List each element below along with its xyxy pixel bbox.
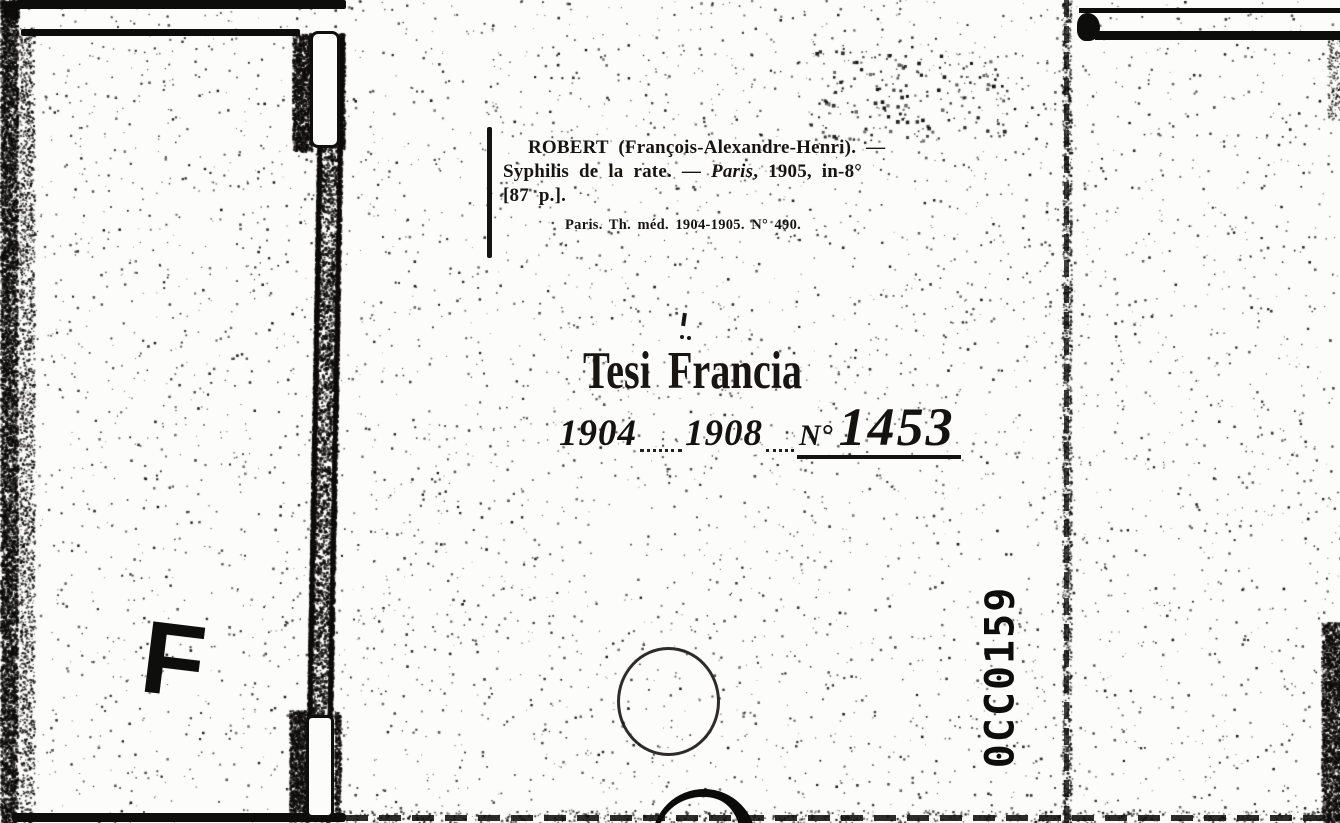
registry-number-label: N° bbox=[799, 419, 833, 453]
registry-year-to: 1908 bbox=[685, 412, 763, 455]
catalog-entry-author: ROBERT bbox=[528, 137, 608, 158]
left-page-top-border bbox=[16, 0, 346, 9]
right-page-top-border-thin bbox=[1079, 8, 1340, 13]
catalog-entry-title-place: Paris bbox=[711, 161, 753, 182]
catalog-entry: ROBERT (François-Alexandre-Henri). — Syp… bbox=[503, 136, 953, 237]
catalog-entry-source: Paris. Th. méd. 1904-1905. N° 490. bbox=[565, 213, 953, 237]
catalog-entry-pagination: [87 p.]. bbox=[503, 184, 953, 208]
spine-tab-bottom bbox=[306, 715, 334, 818]
shelf-letter-mark: F bbox=[136, 605, 211, 715]
left-page-inner-top-border bbox=[21, 29, 300, 36]
inventory-stamp: 0CC0159 bbox=[950, 574, 1050, 780]
registry-line: 1904 1908 N° 1453 bbox=[559, 403, 961, 459]
registry-number: 1453 bbox=[839, 403, 955, 452]
page-bottom-edge-line bbox=[346, 815, 1340, 821]
right-page-top-border-thick bbox=[1095, 31, 1340, 40]
spine-tab-top bbox=[310, 31, 340, 148]
page-gutter-line bbox=[1064, 0, 1069, 823]
scanned-document: ROBERT (François-Alexandre-Henri). — Syp… bbox=[0, 0, 1340, 823]
catalog-entry-line1: ROBERT (François-Alexandre-Henri). — bbox=[503, 136, 953, 160]
left-page-bottom-border bbox=[12, 813, 346, 822]
catalog-bracket-bar bbox=[487, 127, 492, 258]
inventory-stamp-text: 0CC0159 bbox=[977, 586, 1023, 769]
registry-year-from: 1904 bbox=[559, 412, 637, 455]
ink-speck-dot bbox=[687, 336, 691, 340]
catalog-entry-title: Syphilis de la rate. — Paris, 1905, in-8… bbox=[503, 160, 953, 184]
collection-stamp: Tesi Francia bbox=[583, 341, 802, 401]
catalog-entry-title-post: , 1905, in-8° bbox=[753, 161, 862, 182]
catalog-entry-title-pre: Syphilis de la rate. — bbox=[503, 161, 711, 182]
registry-dotted-line bbox=[766, 448, 794, 452]
registry-dotted-line bbox=[640, 448, 682, 452]
catalog-entry-author-detail: (François-Alexandre-Henri). — bbox=[608, 137, 885, 158]
registry-number-group: N° 1453 bbox=[797, 403, 961, 459]
ink-speck-dot bbox=[680, 335, 684, 339]
library-stamp-circle bbox=[617, 647, 720, 756]
